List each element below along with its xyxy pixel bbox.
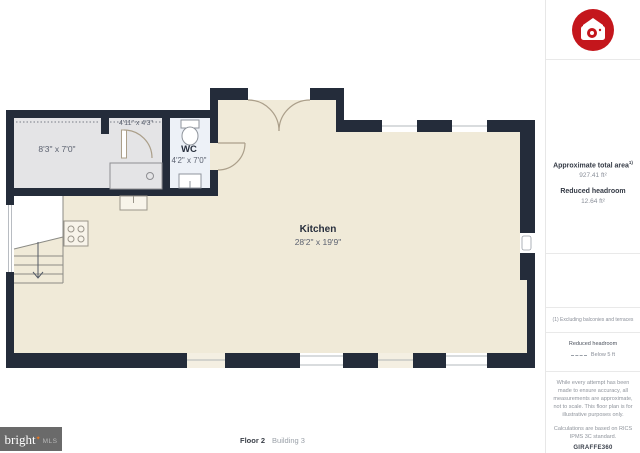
wc-dims: 4'2" x 7'0": [172, 156, 207, 165]
window-top-1: [382, 120, 417, 132]
kitchen-dims: 28'2" x 19'9": [295, 237, 342, 247]
floors: [14, 100, 527, 353]
kitchen-label: Kitchen: [300, 224, 337, 235]
legend-row: Below 5 ft: [546, 352, 640, 358]
legend-title: Reduced headroom: [546, 341, 640, 347]
total-area-value: 927.41 ft²: [546, 172, 640, 179]
wc-label: WC: [181, 144, 197, 155]
sidebar-spacer: [546, 254, 640, 308]
window-top-2: [452, 120, 487, 132]
screenshot: Kitchen 28'2" x 19'9" WC 4'2" x 7'0" 8'3…: [0, 0, 640, 453]
floor-plan-svg: Kitchen 28'2" x 19'9" WC 4'2" x 7'0" 8'3…: [0, 0, 545, 425]
headroom-legend: Reduced headroom Below 5 ft: [546, 333, 640, 372]
window-left: [6, 205, 14, 272]
room-opening-floor: [101, 134, 109, 188]
legend-item-label: Below 5 ft: [591, 352, 615, 358]
wc-basin: [179, 174, 201, 188]
floor-building-label: Floor 2Building 3: [0, 436, 545, 445]
total-area-title: Approximate total area1): [546, 160, 640, 169]
reduced-headroom-value: 12.64 ft²: [546, 198, 640, 205]
small-room-dims: 4'11" x 4'3": [119, 120, 153, 127]
logo-section: [546, 0, 640, 60]
window-bottom-1: [187, 353, 225, 368]
toilet: [181, 120, 199, 145]
window-right: [520, 233, 535, 253]
reduced-headroom-title: Reduced headroom: [546, 188, 640, 195]
area-stats: Approximate total area1) 927.41 ft² Redu…: [546, 60, 640, 254]
door-opening-floor: [210, 143, 218, 170]
giraffe360-brand: GIRAFFE360: [552, 444, 634, 453]
window-bottom-2: [300, 353, 343, 368]
hob: [64, 221, 88, 246]
floor-number: Floor 2: [240, 436, 265, 445]
disclaimer: While every attempt has been made to ens…: [546, 372, 640, 453]
floor-plan: Kitchen 28'2" x 19'9" WC 4'2" x 7'0" 8'3…: [0, 0, 545, 425]
giraffe360-camera-icon: [570, 7, 616, 53]
building-number: Building 3: [272, 436, 305, 445]
dashed-line-sample: [571, 355, 587, 356]
disclaimer-text-1: While every attempt has been made to ens…: [552, 380, 634, 420]
info-sidebar: Approximate total area1) 927.41 ft² Redu…: [545, 0, 640, 453]
shower-tray: [110, 163, 162, 189]
left-room-dims: 8'3" x 7'0": [38, 144, 75, 154]
kitchen-sink: [120, 196, 147, 210]
window-bottom-3: [378, 353, 413, 368]
area-footnote: (1) Excluding balconies and terraces: [546, 308, 640, 333]
window-bottom-4: [446, 353, 487, 368]
disclaimer-text-2: Calculations are based on RICS IPMS 3C s…: [552, 426, 634, 442]
